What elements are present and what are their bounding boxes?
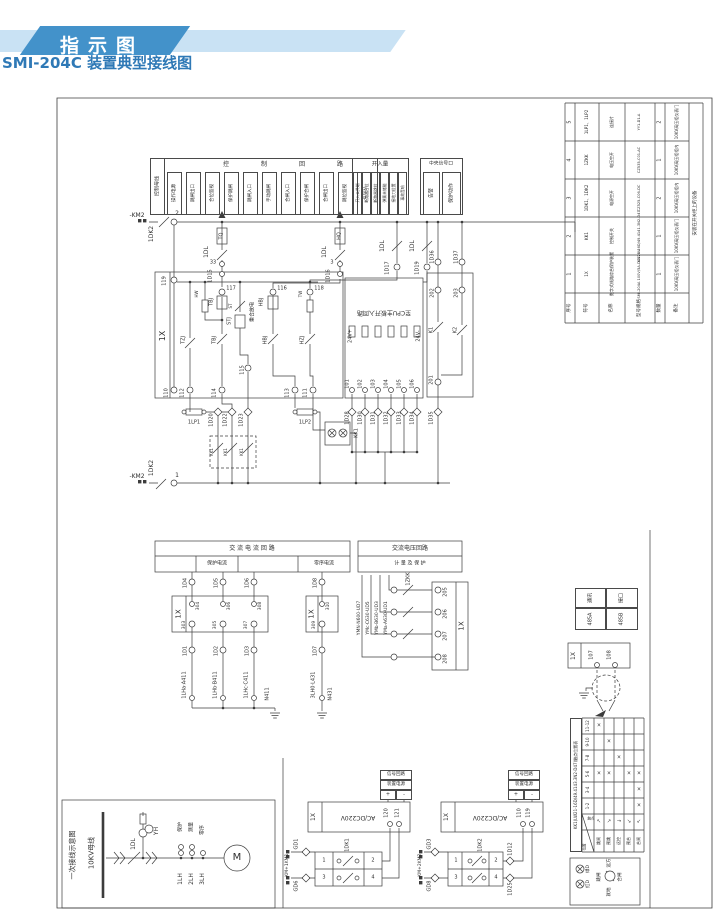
strip-function-label: 合位监视	[210, 184, 215, 202]
strip-function-label: 合闸入口	[286, 184, 291, 202]
bom-cell: 5	[568, 120, 573, 123]
comm-label: 485B	[620, 613, 625, 626]
power-table-label: 装置电源	[387, 783, 405, 788]
wire-label: 206	[444, 609, 449, 619]
wire-label: 1X	[311, 813, 317, 821]
strip-function-label: 保护合闸	[305, 184, 310, 202]
digital-input-label: 断路器合位	[365, 184, 369, 203]
wire-label: 114	[213, 388, 218, 398]
wire-label: 115	[241, 365, 246, 375]
strip-group-label: 制	[261, 162, 267, 168]
digital-input-label: 断路器跳位	[374, 184, 378, 203]
bom-header: 序号	[568, 304, 573, 313]
bom-cell: SMI-204A 100V/5A-DC220V	[638, 249, 642, 298]
digital-input-title: 开入量	[372, 162, 389, 168]
wire-label: -KM2	[129, 474, 144, 480]
wire-label: 绿D	[587, 865, 592, 873]
bom-cell: 1DK1、1DK2	[585, 185, 589, 212]
digital-input-label: 接地刀位置	[392, 184, 396, 203]
wire-label: 合闸	[619, 873, 624, 882]
wire-label: 1	[175, 473, 179, 479]
bom-header: 数量	[658, 304, 663, 313]
wire-label: HW	[195, 291, 199, 298]
wire-label: YMa·A630·UD1	[385, 601, 390, 635]
comm-label: 485A	[588, 613, 593, 626]
wire-label: AC/DC220V	[473, 814, 508, 820]
wire-label: 10KV母线	[89, 837, 96, 869]
wire-label: 1D35	[430, 411, 435, 424]
wire-label: 1D6	[246, 578, 251, 588]
wire-label: 108	[608, 650, 613, 660]
wire-label: 1D1	[184, 646, 189, 656]
wire-label: N431	[329, 687, 334, 700]
wire-label: YMc·C630·UD5	[367, 601, 372, 634]
bom-cell: 1ZKK	[585, 154, 589, 165]
wire-label: YMN·N600·UD7	[358, 601, 363, 635]
wire-label: 1D20	[210, 413, 215, 426]
wire-label: GD8	[428, 881, 433, 892]
wire-label: 1D15	[209, 269, 214, 282]
power-table-label: +	[386, 793, 390, 798]
wire-label: 309	[313, 621, 318, 630]
wire-label: 104	[385, 379, 390, 389]
strip-group-label: 控	[223, 162, 229, 168]
contact-mark: ×	[607, 740, 611, 745]
wire-label: 1D16	[327, 269, 332, 282]
wire-label: 保护电流	[207, 562, 227, 567]
bom-cell: 电压空开	[610, 152, 614, 168]
wire-label: KK1	[355, 428, 360, 438]
power-table-label: 信号回路	[387, 773, 405, 778]
contact-mark: ×	[637, 788, 641, 793]
contact-pair-label: 1-2	[586, 803, 590, 810]
wire-label: TBJ	[210, 298, 215, 306]
wire-label: 1D34	[411, 411, 416, 424]
bom-header: 备注	[675, 304, 680, 313]
wire-label: 1X	[309, 609, 316, 618]
wire-label: 24V-	[417, 330, 422, 341]
power-table-label: 装置电源	[515, 783, 533, 788]
strip-function-label: 合闸出口	[324, 184, 329, 202]
wire-label: 1DK1	[346, 838, 351, 852]
wire-label: 113	[286, 388, 291, 398]
contact-arrow: ↖	[597, 820, 601, 825]
control-bus-label: 控制母线	[155, 176, 160, 196]
wire-label: 1D8	[314, 578, 319, 588]
wire-label: 跳闸	[598, 873, 603, 882]
contact-mark: ×	[637, 804, 641, 809]
wire-label: 1D4	[184, 578, 189, 588]
contact-pair-label: 3-4	[586, 787, 590, 794]
bom-header: 符号	[585, 304, 590, 313]
bom-cell: YY1-D1-A	[638, 114, 642, 131]
wire-label: 1D19	[416, 261, 421, 274]
contact-arrow: ↘	[627, 820, 631, 825]
wire-label: 105	[398, 379, 403, 389]
wire-label: 103	[372, 379, 377, 389]
wire-label: YH	[154, 827, 160, 835]
contact-position-label: 预跳	[607, 837, 611, 845]
wire-label: 203	[455, 288, 460, 298]
wire-label: 1LHa·A411	[183, 671, 188, 698]
strip-group-label: 路	[337, 162, 343, 168]
digital-input-label: 开入公共端	[356, 184, 360, 203]
bom-cell: CZ525-C06-DC	[638, 185, 642, 212]
wire-label: K2	[454, 327, 459, 333]
wire-label: 1X	[176, 609, 183, 618]
bom-cell: 10KV高压柜仪表门	[675, 219, 679, 253]
wire-label: 33	[210, 261, 216, 266]
contact-table-title: KK1(LW21-16D/49.4143.3N2-D47)触点位置表	[574, 741, 578, 829]
wire-label: 1	[322, 859, 325, 864]
wire-label: 4	[371, 876, 374, 881]
wire-label: 零序电流	[314, 562, 334, 567]
central-signal-label: 告警	[429, 188, 434, 198]
wire-label: YMb·B630·UD3	[376, 601, 381, 635]
bom-cell: 1X	[585, 271, 589, 277]
strip-function-label: 操作电源	[172, 184, 177, 202]
wire-label: 重合放电	[251, 302, 256, 322]
wire-label: 1DL	[204, 246, 210, 258]
power-table-label: -	[403, 793, 405, 798]
wire-label: 102	[359, 379, 364, 389]
central-signal-label: 保护动作	[449, 183, 454, 203]
power-table-label: -	[531, 793, 533, 798]
wire-label: 1D32	[385, 411, 390, 424]
wire-label: 3LH	[200, 873, 206, 885]
bom-cell: 2	[658, 120, 663, 123]
wire-label: 3LH0·L431	[312, 672, 317, 699]
wire-label: 1D33	[398, 411, 403, 424]
wire-label: 205	[444, 587, 449, 597]
wire-label: 107	[590, 650, 595, 660]
wire-label: 1DK2	[149, 460, 155, 476]
wire-label: 至CPU主板开入回路	[357, 309, 411, 315]
bom-cell: 10KV高压柜仪表门	[675, 257, 679, 291]
bom-cell: 2	[568, 234, 573, 237]
wire-label: 1D31	[372, 411, 377, 424]
strip-function-label: 跳位监视	[343, 184, 348, 202]
wire-label: N411	[266, 687, 271, 700]
wire-label: 1LH	[178, 873, 184, 885]
wire-label: 118	[314, 287, 324, 292]
wire-label: 2LH	[189, 873, 195, 885]
bom-cell: 电源空开	[610, 190, 614, 206]
page: 指示图 SMI-204C 装置典型接线图 -KM21DK22TQHQ1DL1DL…	[0, 0, 720, 917]
wire-label: 1D36	[431, 250, 436, 263]
bom-cell: 1	[568, 272, 573, 275]
wire-label: 1DL	[380, 240, 386, 252]
wire-label: 303	[183, 621, 188, 630]
bom-header: 名称	[610, 304, 615, 313]
bom-cell: 1	[658, 234, 663, 237]
wire-label: 1D17	[386, 261, 391, 274]
strip-function-label: 跳闸出口	[191, 184, 196, 202]
power-table-label: 信号回路	[515, 773, 533, 778]
contact-arrow: ↗	[607, 820, 611, 825]
wire-label: KK1	[240, 448, 244, 456]
contact-mark: ×	[617, 756, 621, 761]
wire-label: 4	[494, 876, 497, 881]
wire-label: 1D5	[215, 578, 220, 588]
wire-label: 117	[226, 287, 236, 292]
wire-label: 310	[327, 602, 332, 611]
bom-cell: 2	[658, 196, 663, 199]
contact-mark: ×	[607, 772, 611, 777]
wire-label: -KM2	[129, 213, 144, 219]
comm-label: 接口	[620, 593, 625, 603]
contact-mark: ×	[597, 772, 601, 777]
wire-label: GD1	[295, 839, 300, 850]
wire-label: 106	[411, 379, 416, 389]
contact-position-label: 合闸	[637, 837, 641, 845]
wire-label: M	[233, 853, 242, 863]
contact-position-label: 远控	[617, 837, 621, 845]
wire-label: 保护	[179, 822, 184, 832]
digital-input-label: 弹簧未储能	[383, 184, 387, 203]
wire-label: 1ZKK	[407, 572, 412, 585]
wire-label: 308	[259, 602, 264, 611]
wire-label: 121	[396, 808, 401, 818]
power-table-label: +	[514, 793, 518, 798]
wire-label: 1DL	[131, 838, 137, 850]
wire-label: HQ	[338, 232, 343, 240]
bom-cell: 1LP1、1LP2	[585, 110, 589, 135]
strip-function-label: 保护跳闸	[229, 184, 234, 202]
wire-label: 3	[330, 261, 333, 266]
wire-label: K1	[430, 327, 435, 333]
wire-label: 120	[385, 808, 390, 818]
wire-label: GD6	[295, 881, 300, 892]
strip-group-label: 回	[299, 162, 305, 168]
wire-label: 计 量 及 保 护	[394, 562, 425, 567]
contact-pair-label: 9-10	[586, 737, 590, 746]
digital-input-label: 事故音响	[401, 185, 405, 200]
wire-label: 1LP2	[299, 421, 311, 426]
wire-label: 1D12	[509, 842, 514, 855]
wire-label: 远方	[608, 859, 613, 868]
bom-cell: 控制开关	[610, 228, 614, 244]
contact-arrow: →	[617, 820, 621, 825]
central-signal-title: 中央信号口	[429, 163, 453, 168]
comm-label: 通讯	[588, 593, 593, 603]
contact-mark: ×	[637, 772, 641, 777]
strip-function-label: 跳闸入口	[248, 184, 253, 202]
bom-cell: 数字式线路综合保护装置	[610, 252, 614, 296]
wire-label: 1D25	[509, 882, 514, 895]
wire-label: 1X	[571, 652, 577, 660]
wire-label: 就地	[608, 888, 613, 897]
wire-label: 1DK2	[149, 226, 155, 242]
wire-label: 1X	[459, 621, 466, 630]
wire-label: 1LHc·C411	[245, 671, 250, 698]
wire-label: 交流电压回路	[392, 546, 428, 552]
wire-label: 1DK2	[479, 838, 484, 852]
wire-label: ST	[229, 304, 233, 309]
bom-header: 型号规格	[638, 299, 643, 317]
wire-label: 1D22	[224, 413, 229, 426]
wire-label: -KM+1KM1	[286, 854, 291, 879]
wire-label: AC/DC220V	[341, 814, 376, 820]
wire-label: 1D7	[314, 646, 319, 656]
contact-mark: ×	[627, 772, 631, 777]
bom-cell: 10KV高压柜仪表门	[675, 105, 679, 139]
wire-label: KK1	[224, 448, 228, 456]
wire-label: 交 流 电 流 回 路	[229, 546, 275, 552]
wire-label: HBJ	[264, 336, 269, 345]
wire-label: HZJ	[301, 336, 306, 345]
bom-cell: 1	[658, 158, 663, 161]
contact-arrow: ↙	[637, 820, 641, 825]
wire-label: 测量	[190, 822, 195, 832]
contact-pair-label: 5-6	[586, 771, 590, 778]
bom-cell: CZ535-C01-AC	[638, 147, 642, 173]
bom-cell: 连接片	[610, 116, 614, 128]
wire-label: STJ	[228, 317, 233, 325]
wire-label: 201	[430, 375, 435, 385]
contact-position-label: 跳闸	[597, 837, 601, 845]
wire-label: 101	[346, 379, 351, 389]
wire-label: -KM+2KM2	[419, 854, 424, 879]
wire-label: 24V+	[349, 329, 354, 343]
wire-label: 3	[454, 876, 457, 881]
wire-label: 202	[431, 288, 436, 298]
bom-cell: 10KV高压柜柜内	[675, 183, 679, 213]
contact-diag-label: 位置	[583, 844, 587, 851]
wire-label: HBJ	[260, 298, 265, 307]
wire-label: 304	[197, 602, 202, 611]
contact-diag-label: 触点	[588, 817, 595, 821]
wire-label: 1	[454, 859, 457, 864]
wire-label: 1X	[444, 813, 450, 821]
wire-label: 208	[444, 654, 449, 664]
wire-label: 119	[163, 276, 168, 286]
wire-label: 1LP1	[188, 421, 200, 426]
contact-position-label: 预合	[627, 837, 631, 845]
wire-label: 110	[518, 808, 523, 818]
wire-label: TZJ	[182, 336, 187, 344]
bom-cell: 3	[568, 196, 573, 199]
wire-label: 305	[214, 621, 219, 630]
wire-label: 1DL	[410, 240, 416, 252]
contact-pair-label: 11-12	[586, 720, 590, 732]
bom-cell: 4	[568, 158, 573, 161]
wire-label: 3	[322, 876, 325, 881]
wiring-schematic	[0, 0, 720, 917]
wire-label: 119	[527, 808, 532, 818]
wire-label: 207	[444, 631, 449, 641]
wire-label: 307	[245, 621, 250, 630]
bom-note: 安装在开关柜上的设备	[694, 191, 699, 236]
wire-label: 2	[494, 859, 497, 864]
wire-label: 1DL	[322, 246, 328, 258]
contact-mark: ×	[597, 724, 601, 729]
wire-label: 306	[228, 602, 233, 611]
wire-label: 1D37	[455, 250, 460, 263]
wire-label: TW	[299, 291, 303, 297]
wire-label: 零序	[201, 825, 206, 835]
wire-label: 1D28	[346, 411, 351, 424]
contact-pair-label: 7-8	[586, 755, 590, 762]
wire-label: GD3	[428, 839, 433, 850]
wire-label: TQ	[220, 233, 225, 240]
wire-label: 1LHb·B411	[214, 671, 219, 698]
wire-label: 2	[371, 859, 374, 864]
wire-label: 一次接线示意图	[70, 831, 77, 880]
wire-label: 1D3	[246, 646, 251, 656]
bom-cell: 1	[658, 272, 663, 275]
wire-label: 112	[181, 388, 186, 398]
wire-label: 116	[277, 287, 287, 292]
wire-label: 1D2	[215, 646, 220, 656]
wire-label: KK1	[210, 448, 214, 456]
wire-label: 1D23	[240, 413, 245, 426]
wire-label: 110	[165, 388, 170, 398]
wire-label: TBJ	[213, 336, 218, 344]
strip-function-label: 手动跳闸	[267, 184, 272, 202]
bom-cell: 10KV高压柜柜内	[675, 145, 679, 175]
wire-label: 1D30	[359, 411, 364, 424]
wire-label: 红D	[587, 880, 592, 888]
wire-label: 111	[304, 388, 309, 398]
bom-cell: KK1	[585, 232, 589, 240]
wire-label: 1X	[159, 331, 167, 342]
